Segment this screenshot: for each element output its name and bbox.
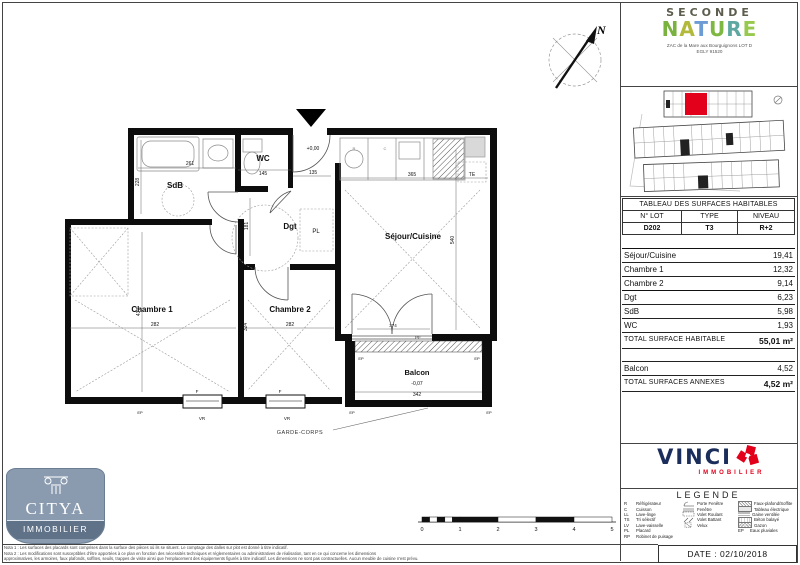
- total-label: TOTAL SURFACE HABITABLE: [624, 336, 725, 346]
- legend-key: LV: [624, 523, 634, 528]
- table-row: Séjour/Cuisine 19,41: [622, 248, 795, 263]
- legend: LEGENDE RRéfrigérateur CCuisson LLLave-l…: [622, 490, 795, 541]
- row-label: Dgt: [624, 293, 636, 303]
- tableau-electrique-swatch: [738, 506, 752, 512]
- nature-letter: E: [743, 17, 758, 41]
- lot-number: D202: [623, 223, 681, 234]
- row-value: 5,98: [777, 307, 793, 317]
- vinci-sub-label: IMMOBILIER: [668, 470, 795, 476]
- annex-total-value: 4,52 m²: [764, 379, 793, 389]
- nature-letter: A: [679, 17, 694, 41]
- legend-column-surfaces: Faux-plafond/Soffite Tableau électrique …: [738, 501, 795, 533]
- row-label: Chambre 1: [624, 265, 664, 275]
- legend-key: EP: [738, 528, 748, 533]
- gaine-ventilee-swatch: [738, 512, 750, 516]
- legend-label: Lave-vaisselle: [636, 523, 663, 528]
- velux-icon: [682, 522, 695, 528]
- header-niveau: NIVEAU: [737, 211, 794, 222]
- legend-label: Porte Fenêtre: [697, 501, 723, 506]
- vinci-logo: VINCI IMMOBILIER: [622, 445, 795, 476]
- citya-sub-label: IMMOBILIER: [7, 520, 104, 539]
- legend-label: Eaux pluviales: [750, 528, 778, 533]
- vinci-wordmark: VINCI: [657, 445, 732, 469]
- surface-table-headers: N° LOT TYPE NIVEAU: [622, 211, 795, 223]
- legend-column-keys: RRéfrigérateur CCuisson LLLave-linge TST…: [624, 501, 680, 539]
- row-label: Séjour/Cuisine: [624, 251, 676, 261]
- legend-label: Robinet de puisage: [636, 534, 673, 539]
- legend-label: Velux: [697, 523, 708, 528]
- seconde-nature-logo: SECONDE NATURE ZAC de la Mare aux Bourgu…: [622, 6, 797, 55]
- site-building-c: [643, 160, 779, 192]
- legend-label: Gazon: [754, 523, 767, 528]
- header-type: TYPE: [681, 211, 737, 222]
- legend-title: LEGENDE: [622, 490, 795, 500]
- legend-label: Placard: [636, 528, 651, 533]
- row-value: 12,32: [773, 265, 793, 275]
- nature-letter: R: [726, 17, 742, 41]
- project-address-2: EGLY 91520: [622, 49, 797, 55]
- row-label: SdB: [624, 307, 639, 317]
- row-label: WC: [624, 321, 637, 331]
- table-row: Dgt 6,23: [622, 291, 795, 305]
- legend-label: Lave-linge: [636, 512, 656, 517]
- lot-level: R+2: [737, 223, 794, 234]
- date-box: DATE : 02/10/2018: [658, 545, 797, 563]
- legend-label: Tri sélectif: [636, 517, 655, 522]
- row-value: 9,14: [777, 279, 793, 289]
- legend-label: Réfrigérateur: [636, 501, 661, 506]
- legend-label: Béton balayé: [754, 517, 779, 522]
- total-habitable-row: TOTAL SURFACE HABITABLE 55,01 m²: [622, 333, 795, 349]
- legend-label: Fenêtre: [697, 507, 712, 512]
- north-marker-icon: [774, 96, 782, 104]
- table-row: SdB 5,98: [622, 305, 795, 319]
- site-building-a: [664, 91, 752, 117]
- legend-key: C: [624, 507, 634, 512]
- header-lot: N° LOT: [623, 211, 681, 222]
- divider-1: [620, 86, 797, 87]
- legend-label: Faux-plafond/Soffite: [754, 501, 792, 506]
- total-value: 55,01 m²: [759, 336, 793, 346]
- nature-letter: T: [694, 17, 709, 41]
- row-value: 1,93: [777, 321, 793, 331]
- legend-label: Volet Roulant: [697, 512, 723, 517]
- brand-nature: NATURE: [622, 19, 797, 39]
- site-building-b: [633, 120, 784, 158]
- legend-key: RP: [624, 534, 634, 539]
- lot-type: T3: [681, 223, 737, 234]
- divider-2: [620, 196, 797, 197]
- table-row: Chambre 1 12,32: [622, 263, 795, 277]
- highlighted-unit: [685, 93, 707, 115]
- citya-wordmark: CITYA: [7, 500, 104, 518]
- legend-key: R: [624, 501, 634, 506]
- table-row: WC 1,93: [622, 319, 795, 333]
- site-key-plan: [622, 88, 797, 194]
- legend-label: Tableau électrique: [754, 507, 789, 512]
- column-capital-icon: [41, 473, 71, 495]
- divider-3: [620, 443, 797, 444]
- total-annexes-row: TOTAL SURFACES ANNEXES 4,52 m²: [622, 376, 795, 392]
- surface-rows: Séjour/Cuisine 19,41 Chambre 1 12,32 Cha…: [622, 248, 795, 392]
- legend-key: TS: [624, 517, 634, 522]
- surface-table-values: D202 T3 R+2: [622, 223, 795, 235]
- legend-label: Volet Battant: [697, 517, 721, 522]
- nature-letter: U: [709, 17, 726, 41]
- table-row: Chambre 2 9,14: [622, 277, 795, 291]
- nota-3: approximatives, les armoires, faux plafo…: [4, 556, 654, 562]
- row-value: 4,52: [777, 364, 793, 374]
- surface-table: TABLEAU DES SURFACES HABITABLES N° LOT T…: [622, 198, 795, 392]
- table-row-balcon: Balcon 4,52: [622, 362, 795, 376]
- legend-key: PL: [624, 528, 634, 533]
- footnotes: Nota 1 : Les surfaces des placards sont …: [4, 545, 654, 562]
- vinci-mark-icon: [736, 445, 760, 469]
- row-value: 6,23: [777, 293, 793, 303]
- legend-column-openings: Porte Fenêtre Fenêtre Volet Roulant Vole…: [682, 501, 736, 528]
- surface-table-title: TABLEAU DES SURFACES HABITABLES: [622, 198, 795, 211]
- row-label: Chambre 2: [624, 279, 664, 289]
- citya-logo: CITYA IMMOBILIER: [6, 468, 105, 544]
- legend-label: Gaine ventilée: [752, 512, 779, 517]
- annex-total-label: TOTAL SURFACES ANNEXES: [624, 379, 725, 389]
- nature-letter: N: [662, 17, 680, 41]
- divider-4: [620, 488, 797, 489]
- legend-label: Cuisson: [636, 507, 652, 512]
- row-value: 19,41: [773, 251, 793, 261]
- legend-key: LL: [624, 512, 634, 517]
- row-label: Balcon: [624, 364, 648, 374]
